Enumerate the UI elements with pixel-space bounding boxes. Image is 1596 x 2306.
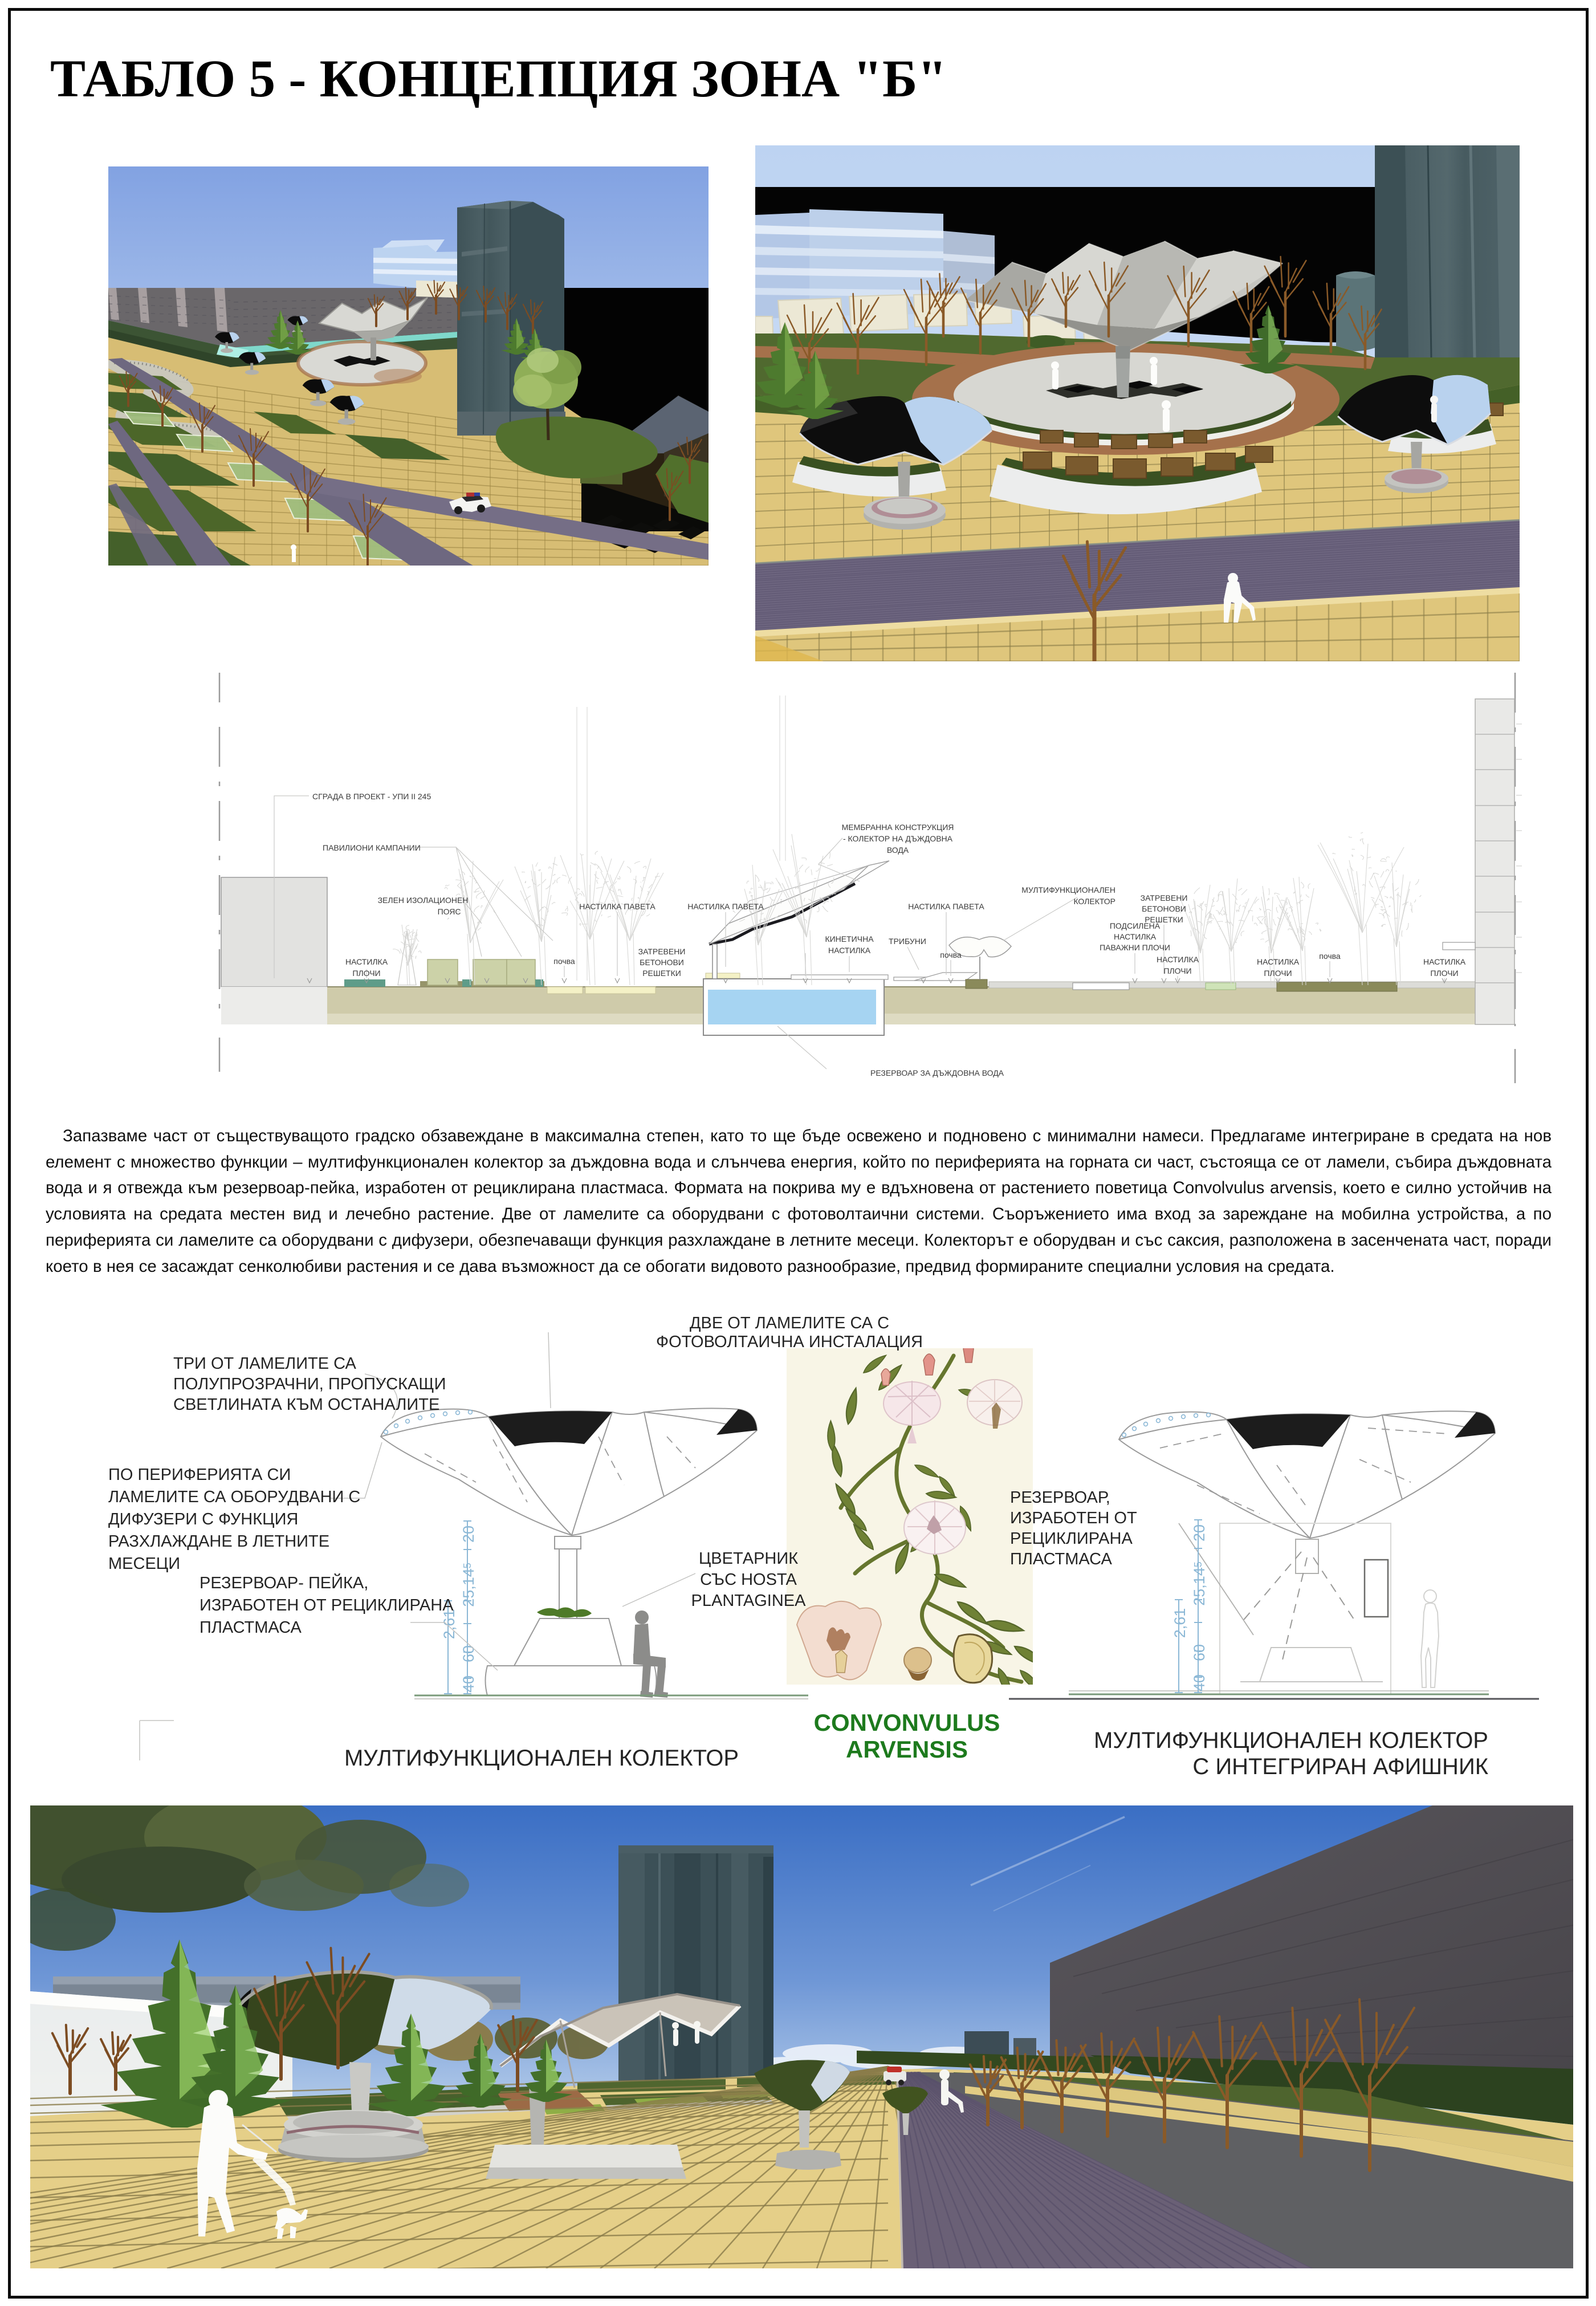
svg-text:ИЗРАБОТЕН ОТ: ИЗРАБОТЕН ОТ	[1010, 1509, 1137, 1527]
svg-text:БЕТОНОВИ: БЕТОНОВИ	[640, 958, 684, 967]
svg-text:ЗАТРЕВЕНИ: ЗАТРЕВЕНИ	[1141, 893, 1188, 902]
svg-text:ЦВЕТАРНИК: ЦВЕТАРНИК	[699, 1549, 798, 1568]
svg-text:ПАВАЖНИ ПЛОЧИ: ПАВАЖНИ ПЛОЧИ	[1100, 943, 1170, 952]
svg-text:СЪС HOSTA: СЪС HOSTA	[700, 1571, 797, 1589]
svg-text:ВОДА: ВОДА	[887, 845, 909, 855]
svg-text:НАСТИЛКА ПАВЕТА: НАСТИЛКА ПАВЕТА	[687, 902, 764, 911]
svg-text:ПОДСИЛЕНА: ПОДСИЛЕНА	[1110, 921, 1161, 930]
svg-text:20: 20	[1191, 1524, 1208, 1542]
svg-text:ПЛАСТМАСА: ПЛАСТМАСА	[199, 1618, 302, 1637]
svg-text:ТРИБУНИ: ТРИБУНИ	[889, 937, 926, 946]
svg-text:60: 60	[460, 1645, 477, 1662]
svg-text:ПЛОЧИ: ПЛОЧИ	[352, 969, 380, 978]
svg-text:МЕСЕЦИ: МЕСЕЦИ	[108, 1555, 180, 1573]
svg-text:РЕЗЕРВОАР- ПЕЙКА,: РЕЗЕРВОАР- ПЕЙКА,	[199, 1573, 368, 1592]
svg-text:PLANTAGINEA: PLANTAGINEA	[691, 1592, 807, 1610]
svg-text:БЕТОНОВИ: БЕТОНОВИ	[1142, 904, 1186, 913]
svg-text:НАСТИЛКА ПАВЕТА: НАСТИЛКА ПАВЕТА	[579, 902, 655, 911]
svg-text:ПОЯС: ПОЯС	[438, 907, 461, 916]
svg-text:КОЛЕКТОР: КОЛЕКТОР	[1073, 897, 1115, 906]
svg-text:ЛАМЕЛИТЕ СА ОБОРУДВАНИ С: ЛАМЕЛИТЕ СА ОБОРУДВАНИ С	[108, 1488, 360, 1506]
svg-text:НАСТИЛКА: НАСТИЛКА	[1157, 955, 1199, 964]
svg-text:ПАВИЛИОНИ КАМПАНИИ: ПАВИЛИОНИ КАМПАНИИ	[323, 843, 421, 852]
svg-text:ПЛОЧИ: ПЛОЧИ	[1163, 966, 1191, 975]
svg-text:ИЗРАБОТЕН ОТ РЕЦИКЛИРАНА: ИЗРАБОТЕН ОТ РЕЦИКЛИРАНА	[199, 1596, 454, 1614]
svg-text:20: 20	[460, 1526, 477, 1543]
svg-text:60: 60	[1191, 1644, 1208, 1661]
svg-text:ЗЕЛЕН ИЗОЛАЦИОНЕН: ЗЕЛЕН ИЗОЛАЦИОНЕН	[378, 896, 469, 905]
svg-text:ТРИ ОТ ЛАМЕЛИТЕ СА: ТРИ ОТ ЛАМЕЛИТЕ СА	[173, 1355, 356, 1373]
svg-text:РЕЗЕРВОАР ЗА ДЪЖДОВНА ВОДА: РЕЗЕРВОАР ЗА ДЪЖДОВНА ВОДА	[870, 1068, 1004, 1077]
svg-text:КИНЕТИЧНА: КИНЕТИЧНА	[825, 934, 874, 943]
svg-text:НАСТИЛКА ПАВЕТА: НАСТИЛКА ПАВЕТА	[908, 902, 984, 911]
svg-text:РАЗХЛАЖДАНЕ В ЛЕТНИТЕ: РАЗХЛАЖДАНЕ В ЛЕТНИТЕ	[108, 1532, 329, 1551]
svg-text:ПЛАСТМАСА: ПЛАСТМАСА	[1010, 1550, 1112, 1568]
svg-text:25,145: 25,145	[460, 1563, 477, 1607]
svg-text:почва: почва	[1319, 951, 1341, 961]
svg-text:25,145: 25,145	[1191, 1561, 1208, 1606]
svg-text:НАСТИЛКА: НАСТИЛКА	[1423, 957, 1466, 966]
svg-text:РЕЗЕРВОАР,: РЕЗЕРВОАР,	[1010, 1488, 1110, 1507]
svg-text:почва: почва	[940, 950, 962, 959]
svg-text:НАСТИЛКА: НАСТИЛКА	[345, 957, 388, 966]
svg-text:40: 40	[460, 1675, 477, 1693]
svg-text:2,61: 2,61	[1171, 1608, 1188, 1638]
svg-text:- КОЛЕКТОР НА ДЪЖДОВНА: - КОЛЕКТОР НА ДЪЖДОВНА	[843, 834, 953, 843]
svg-text:РЕШЕТКИ: РЕШЕТКИ	[642, 969, 681, 978]
svg-text:С ИНТЕГРИРАН АФИШНИК: С ИНТЕГРИРАН АФИШНИК	[1192, 1754, 1488, 1779]
svg-text:МЕМБРАННА КОНСТРУКЦИЯ: МЕМБРАННА КОНСТРУКЦИЯ	[842, 823, 954, 832]
svg-text:ФОТОВОЛТАИЧНА ИНСТАЛАЦИЯ: ФОТОВОЛТАИЧНА ИНСТАЛАЦИЯ	[656, 1333, 923, 1351]
svg-text:ПЛОЧИ: ПЛОЧИ	[1264, 969, 1292, 978]
svg-text:ДВЕ ОТ ЛАМЕЛИТЕ СА С: ДВЕ ОТ ЛАМЕЛИТЕ СА С	[690, 1314, 889, 1332]
svg-text:40: 40	[1191, 1674, 1208, 1691]
svg-text:CONVONVULUS: CONVONVULUS	[814, 1709, 1000, 1736]
svg-text:ПО ПЕРИФЕРИЯТА СИ: ПО ПЕРИФЕРИЯТА СИ	[108, 1466, 291, 1484]
svg-text:МУЛТИФУНКЦИОНАЛЕН: МУЛТИФУНКЦИОНАЛЕН	[1021, 885, 1115, 894]
svg-text:ДИФУЗЕРИ С ФУНКЦИЯ: ДИФУЗЕРИ С ФУНКЦИЯ	[108, 1510, 298, 1528]
svg-text:МУЛТИФУНКЦИОНАЛЕН КОЛЕКТОР: МУЛТИФУНКЦИОНАЛЕН КОЛЕКТОР	[344, 1746, 739, 1771]
svg-text:СВЕТЛИНАТА КЪМ ОСТАНАЛИТЕ: СВЕТЛИНАТА КЪМ ОСТАНАЛИТЕ	[173, 1396, 439, 1414]
svg-text:ПЛОЧИ: ПЛОЧИ	[1430, 969, 1458, 978]
svg-text:НАСТИЛКА: НАСТИЛКА	[1114, 932, 1157, 941]
svg-text:СГРАДА В ПРОЕКТ - УПИ II 245: СГРАДА В ПРОЕКТ - УПИ II 245	[312, 792, 431, 801]
svg-text:НАСТИЛКА: НАСТИЛКА	[828, 946, 871, 955]
svg-text:почва: почва	[553, 957, 575, 966]
svg-text:НАСТИЛКА: НАСТИЛКА	[1257, 957, 1300, 966]
svg-text:ARVENSIS: ARVENSIS	[846, 1736, 968, 1763]
svg-text:РЕЦИКЛИРАНА: РЕЦИКЛИРАНА	[1010, 1530, 1133, 1548]
svg-text:ЗАТРЕВЕНИ: ЗАТРЕВЕНИ	[638, 947, 686, 956]
svg-text:МУЛТИФУНКЦИОНАЛЕН КОЛЕКТОР: МУЛТИФУНКЦИОНАЛЕН КОЛЕКТОР	[1094, 1728, 1488, 1753]
svg-text:ПОЛУПРОЗРАЧНИ, ПРОПУСКАЩИ: ПОЛУПРОЗРАЧНИ, ПРОПУСКАЩИ	[173, 1375, 446, 1393]
